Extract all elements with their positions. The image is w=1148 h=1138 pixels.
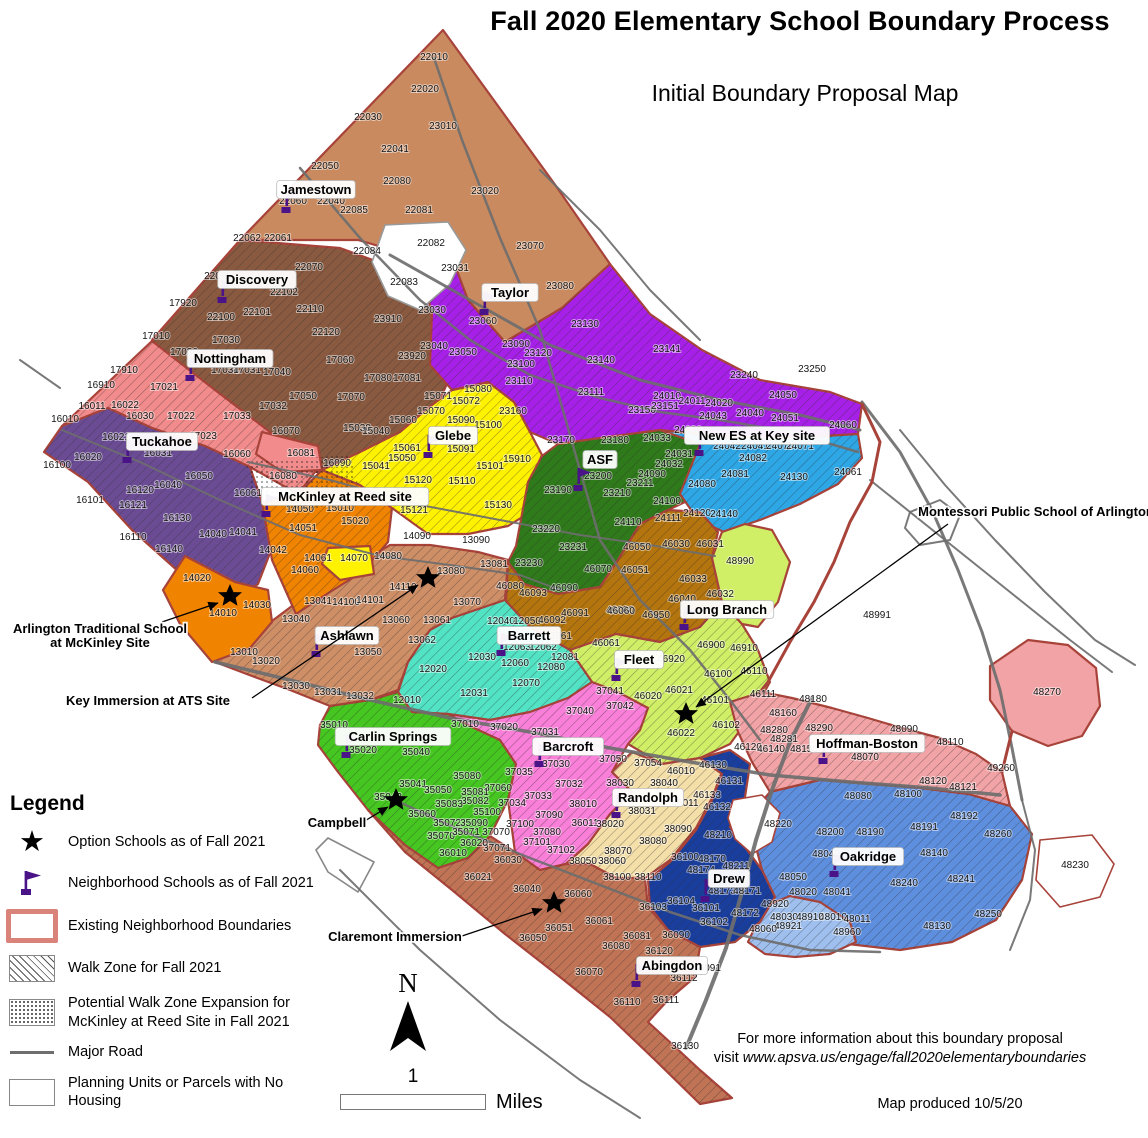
parcel-label: 23240 xyxy=(730,370,758,381)
parcel-label: 48011 xyxy=(843,914,871,925)
parcel-label: 23210 xyxy=(603,488,631,499)
parcel-label: 36030 xyxy=(494,855,522,866)
legend-item: Neighborhood Schools as of Fall 2021 xyxy=(6,869,334,897)
parcel-label: 24140 xyxy=(710,509,738,520)
parcel-label: 22120 xyxy=(312,327,340,338)
parcel-label: 17050 xyxy=(289,391,317,402)
parcel-label: 48270 xyxy=(1033,687,1061,698)
parcel-label: 14110 xyxy=(389,582,417,593)
parcel-label: 48290 xyxy=(805,723,833,734)
parcel-label: 38031 xyxy=(628,806,656,817)
parcel-label: 22110 xyxy=(296,304,324,315)
school-label: Carlin Springs xyxy=(349,729,438,744)
parcel-label: 23070 xyxy=(516,241,544,252)
parcel-label: 37050 xyxy=(599,754,627,765)
parcel-label: 46140 xyxy=(757,744,785,755)
parcel-label: 36090 xyxy=(662,930,690,941)
scale-unit: Miles xyxy=(496,1091,543,1114)
parcel-label: 17033 xyxy=(223,411,251,422)
parcel-label: 46032 xyxy=(706,589,734,600)
parcel-label: 15100 xyxy=(474,420,502,431)
parcel-label: 15020 xyxy=(341,516,369,527)
parcel-label: 37035 xyxy=(505,767,533,778)
parcel-label: 16030 xyxy=(126,411,154,422)
north-arrow: N xyxy=(384,968,432,1060)
parcel-label: 48041 xyxy=(823,887,851,898)
parcel-label: 36103 xyxy=(639,902,667,913)
parcel-label: 24060 xyxy=(829,420,857,431)
parcel-label: 23111 xyxy=(578,387,605,398)
parcel-label: 16080 xyxy=(269,471,297,482)
parcel-label: 36061 xyxy=(585,916,613,927)
nohousing-icon xyxy=(9,1079,55,1106)
parcel-label: 14090 xyxy=(403,531,431,542)
parcel-label: 46093 xyxy=(519,588,547,599)
parcel-label: 23040 xyxy=(420,341,448,352)
school-label: Fleet xyxy=(624,652,655,667)
school-label: Barrett xyxy=(508,628,551,643)
parcel-label: 16070 xyxy=(272,426,300,437)
parcel-label: 46090 xyxy=(550,583,578,594)
parcel-label: 36040 xyxy=(513,884,541,895)
school-label: Randolph xyxy=(618,790,678,805)
parcel-label: 48050 xyxy=(779,872,807,883)
footer-info-line1: For more information about this boundary… xyxy=(737,1031,1063,1047)
parcel-label: 13081 xyxy=(480,559,508,570)
parcel-label: 46111 xyxy=(750,689,777,700)
footer-info: For more information about this boundary… xyxy=(655,1030,1145,1068)
parcel-label: 17010 xyxy=(142,331,170,342)
parcel-label: 46132 xyxy=(703,802,731,813)
parcel-label: 35080 xyxy=(453,771,481,782)
school-label: Jamestown xyxy=(281,182,352,197)
parcel-label: 46900 xyxy=(697,640,725,651)
legend-item: Existing Neighborhood Boundaries xyxy=(6,909,334,943)
parcel-label: 36102 xyxy=(700,917,728,928)
school-label: Claremont Immersion xyxy=(328,929,462,944)
school-label: Taylor xyxy=(491,285,529,300)
parcel-label: 16100 xyxy=(43,460,71,471)
parcel-label: 37020 xyxy=(490,722,518,733)
parcel-label: 36111 xyxy=(653,995,680,1006)
legend-item-label: Option Schools as of Fall 2021 xyxy=(68,833,265,852)
parcel-label: 16910 xyxy=(87,380,115,391)
parcel-label: 48220 xyxy=(764,819,792,830)
parcel-label: 35060 xyxy=(408,809,436,820)
scale-value: 1 xyxy=(340,1066,486,1088)
parcel-label: 22084 xyxy=(353,246,381,257)
parcel-label: 36120 xyxy=(645,946,673,957)
parcel-label: 24033 xyxy=(643,433,671,444)
parcel-label: 12050 xyxy=(513,616,541,627)
parcel-label: 35040 xyxy=(402,747,430,758)
parcel-label: 14030 xyxy=(243,600,271,611)
school-label: Drew xyxy=(713,871,746,886)
parcel-label: 46130 xyxy=(699,760,727,771)
parcel-label: 14042 xyxy=(259,545,287,556)
flag-icon xyxy=(6,869,58,897)
school-label: Oakridge xyxy=(840,849,896,864)
parcel-label: 22080 xyxy=(383,176,411,187)
parcel-label: 22085 xyxy=(340,205,368,216)
parcel-label: 16110 xyxy=(119,532,147,543)
parcel-label: 16060 xyxy=(223,449,251,460)
parcel-label: 23110 xyxy=(505,376,533,387)
parcel-label: 48110 xyxy=(936,737,964,748)
parcel-label: 13070 xyxy=(453,597,481,608)
parcel-label: 24100 xyxy=(653,496,681,507)
parcel-label: 23080 xyxy=(546,281,574,292)
parcel-label: 46102 xyxy=(712,720,740,731)
parcel-label: 37090 xyxy=(535,810,563,821)
parcel-label: 17910 xyxy=(110,365,138,376)
parcel-label: 15101 xyxy=(476,461,504,472)
parcel-label: 23030 xyxy=(418,305,446,316)
school-label: Barcroft xyxy=(543,739,594,754)
parcel-label: 38010 xyxy=(569,799,597,810)
parcel-label: 35050 xyxy=(424,785,452,796)
parcel-label: 35070 xyxy=(427,831,455,842)
boundary-icon xyxy=(6,909,58,943)
parcel-label: 24011 xyxy=(678,396,706,407)
parcel-label: 38080 xyxy=(639,836,667,847)
north-label: N xyxy=(384,968,432,999)
parcel-label: 36020 xyxy=(460,838,488,849)
parcel-label: 35082 xyxy=(461,796,489,807)
parcel-label: 48191 xyxy=(910,822,938,833)
parcel-label: 24080 xyxy=(688,479,716,490)
parcel-label: 12070 xyxy=(512,678,540,689)
parcel-label: 22030 xyxy=(354,112,382,123)
parcel-label: 46091 xyxy=(561,608,589,619)
parcel-label: 15072 xyxy=(452,396,480,407)
parcel-label: 36021 xyxy=(464,872,492,883)
legend-item-label: Neighborhood Schools as of Fall 2021 xyxy=(68,874,314,893)
no-housing-area xyxy=(1036,835,1114,907)
parcel-label: 37034 xyxy=(498,798,526,809)
parcel-label: 24010 xyxy=(653,391,681,402)
parcel-label: 12020 xyxy=(419,664,447,675)
parcel-label: 15121 xyxy=(400,505,428,516)
parcel-label: 23050 xyxy=(449,347,477,358)
parcel-label: 48920 xyxy=(761,899,789,910)
parcel-label: 16101 xyxy=(76,495,104,506)
parcel-label: 12080 xyxy=(537,662,565,673)
parcel-label: 24043 xyxy=(699,411,727,422)
parcel-label: 16120 xyxy=(126,485,154,496)
parcel-label: 14051 xyxy=(289,523,317,534)
school-label: Montessori Public School of Arlington xyxy=(918,504,1148,519)
parcel-label: 23140 xyxy=(587,355,615,366)
parcel-label: 16010 xyxy=(51,414,79,425)
parcel-label: 46030 xyxy=(662,539,690,550)
parcel-label: 46950 xyxy=(642,610,670,621)
parcel-label: 46020 xyxy=(634,691,662,702)
parcel-label: 23920 xyxy=(398,351,426,362)
parcel-label: 17040 xyxy=(263,367,291,378)
parcel-label: 22081 xyxy=(405,205,433,216)
parcel-label: 23160 xyxy=(499,406,527,417)
parcel-label: 13041 xyxy=(304,596,332,607)
parcel-label: 15040 xyxy=(362,426,390,437)
parcel-label: 24061 xyxy=(834,467,862,478)
parcel-label: 24040 xyxy=(736,408,764,419)
legend-heading: Legend xyxy=(10,792,334,816)
parcel-label: 15130 xyxy=(484,500,512,511)
parcel-label: 13060 xyxy=(382,615,410,626)
parcel-label: 48991 xyxy=(863,610,891,621)
parcel-label: 37031 xyxy=(531,727,559,738)
school-label: Hoffman-Boston xyxy=(816,736,918,751)
parcel-label: 48210 xyxy=(704,830,732,841)
parcel-label: 14070 xyxy=(340,553,368,564)
major-road xyxy=(20,360,60,388)
parcel-label: 14080 xyxy=(374,551,402,562)
parcel-label: 22020 xyxy=(411,84,439,95)
parcel-label: 16011 xyxy=(78,401,106,412)
parcel-label: 22062 xyxy=(233,233,261,244)
parcel-label: 48921 xyxy=(774,921,802,932)
parcel-label: 23910 xyxy=(374,314,402,325)
parcel-label: 16050 xyxy=(185,471,213,482)
parcel-label: 46060 xyxy=(607,606,635,617)
parcel-label: 22050 xyxy=(311,161,339,172)
parcel-label: 17022 xyxy=(167,411,195,422)
parcel-label: 15041 xyxy=(362,461,390,472)
parcel-label: 48241 xyxy=(947,874,975,885)
star-icon: ★ xyxy=(19,828,45,857)
parcel-label: 36011 xyxy=(571,818,599,829)
parcel-label: 14060 xyxy=(291,565,319,576)
parcel-label: 37032 xyxy=(555,779,583,790)
hatch-icon xyxy=(9,955,55,982)
parcel-label: 14101 xyxy=(356,595,384,606)
parcel-label: 14020 xyxy=(183,573,211,584)
parcel-label: 48960 xyxy=(833,927,861,938)
parcel-label: 46051 xyxy=(621,565,649,576)
parcel-label: 24111 xyxy=(655,513,682,524)
parcel-label: 46031 xyxy=(696,539,724,550)
parcel-label: 48180 xyxy=(799,694,827,705)
parcel-label: 22082 xyxy=(417,238,445,249)
parcel-label: 15091 xyxy=(447,444,475,455)
school-label: Tuckahoe xyxy=(132,434,192,449)
parcel-label: 17021 xyxy=(150,382,178,393)
school-label: ASF xyxy=(587,452,613,467)
parcel-label: 37054 xyxy=(634,758,662,769)
parcel-label: 48121 xyxy=(949,782,977,793)
parcel-label: 48230 xyxy=(1061,860,1089,871)
parcel-label: 48260 xyxy=(984,829,1012,840)
parcel-label: 38100 xyxy=(603,872,631,883)
parcel-label: 13020 xyxy=(252,656,280,667)
parcel-label: 38040 xyxy=(650,778,678,789)
dots-icon xyxy=(9,999,55,1026)
parcel-label: 22061 xyxy=(264,233,292,244)
parcel-label: 16061 xyxy=(234,488,262,499)
parcel-label: 12040 xyxy=(487,616,515,627)
parcel-label: 24110 xyxy=(614,517,642,528)
parcel-label: 23250 xyxy=(798,364,826,375)
parcel-label: 35083 xyxy=(435,799,463,810)
parcel-label: 36050 xyxy=(519,933,547,944)
legend: Legend ★ Option Schools as of Fall 2021 … xyxy=(6,792,334,1123)
legend-item-label: Planning Units or Parcels with No Housin… xyxy=(68,1074,334,1111)
parcel-label: 13080 xyxy=(437,566,465,577)
parcel-label: 49260 xyxy=(987,763,1015,774)
parcel-label: 16081 xyxy=(287,448,315,459)
road-icon xyxy=(10,1051,54,1054)
legend-item: Walk Zone for Fall 2021 xyxy=(6,955,334,982)
parcel-label: 46021 xyxy=(665,685,693,696)
parcel-label: 23220 xyxy=(532,524,560,535)
parcel-label: 48250 xyxy=(974,909,1002,920)
parcel-label: 23151 xyxy=(651,401,679,412)
parcel-label: 24130 xyxy=(780,472,808,483)
parcel-label: 38060 xyxy=(598,856,626,867)
major-road xyxy=(900,430,1135,665)
parcel-label: 48160 xyxy=(769,708,797,719)
parcel-label: 48130 xyxy=(923,921,951,932)
parcel-label: 13061 xyxy=(423,615,451,626)
parcel-label: 46070 xyxy=(584,564,612,575)
parcel-label: 14061 xyxy=(304,553,332,564)
parcel-label: 35071 xyxy=(452,827,480,838)
parcel-label: 23031 xyxy=(441,263,469,274)
north-arrow-icon xyxy=(384,999,432,1055)
school-label: Nottingham xyxy=(194,351,266,366)
parcel-label: 23190 xyxy=(544,485,572,496)
parcel-label: 48172 xyxy=(731,908,759,919)
parcel-label: 15910 xyxy=(503,454,531,465)
parcel-label: 13030 xyxy=(282,681,310,692)
parcel-label: 24082 xyxy=(739,453,767,464)
school-label: Discovery xyxy=(226,272,289,287)
school-label: Ashlawn xyxy=(320,628,374,643)
legend-item-label: Major Road xyxy=(68,1043,143,1062)
parcel-label: 15120 xyxy=(404,475,432,486)
legend-item: Planning Units or Parcels with No Housin… xyxy=(6,1074,334,1111)
parcel-label: 12010 xyxy=(393,695,421,706)
parcel-label: 36101 xyxy=(692,903,720,914)
parcel-label: 23141 xyxy=(653,344,681,355)
parcel-label: 35100 xyxy=(473,807,501,818)
parcel-label: 23100 xyxy=(507,359,535,370)
parcel-label: 37102 xyxy=(547,845,575,856)
parcel-label: 46061 xyxy=(592,638,620,649)
legend-item: Potential Walk Zone Expansion for McKinl… xyxy=(6,994,334,1031)
parcel-label: 17060 xyxy=(326,355,354,366)
parcel-label: 24081 xyxy=(721,469,749,480)
legend-item: Major Road xyxy=(6,1043,334,1062)
parcel-label: 22010 xyxy=(420,52,448,63)
parcel-label: 15080 xyxy=(464,384,492,395)
parcel-label: 13090 xyxy=(462,535,490,546)
parcel-label: 15060 xyxy=(389,415,417,426)
parcel-label: 15090 xyxy=(447,415,475,426)
parcel-label: 48240 xyxy=(890,878,918,889)
parcel-label: 37040 xyxy=(566,706,594,717)
parcel-label: 38050 xyxy=(569,856,597,867)
school-label: New ES at Key site xyxy=(699,428,815,443)
parcel-label: 23231 xyxy=(559,542,587,553)
parcel-label: 36100 xyxy=(671,852,699,863)
parcel-label: 14040 xyxy=(199,529,227,540)
parcel-label: 48140 xyxy=(920,848,948,859)
parcel-label: 24120 xyxy=(683,508,711,519)
parcel-label: 17081 xyxy=(393,373,421,384)
parcel-label: 37042 xyxy=(606,701,634,712)
parcel-label: 12060 xyxy=(501,658,529,669)
parcel-label: 37033 xyxy=(524,791,552,802)
parcel-label: 48080 xyxy=(844,791,872,802)
parcel-label: 22083 xyxy=(390,277,418,288)
parcel-label: 16022 xyxy=(111,400,139,411)
parcel-label: 48070 xyxy=(851,752,879,763)
parcel-label: 36104 xyxy=(667,896,695,907)
legend-item-label: Existing Neighborhood Boundaries xyxy=(68,917,291,936)
parcel-label: 23130 xyxy=(571,319,599,330)
school-label: Key Immersion at ATS Site xyxy=(66,693,230,708)
parcel-label: 36010 xyxy=(439,848,467,859)
parcel-label: 36070 xyxy=(575,967,603,978)
parcel-label: 46022 xyxy=(667,728,695,739)
parcel-label: 38030 xyxy=(606,778,634,789)
parcel-label: 16140 xyxy=(155,544,183,555)
parcel-label: 13050 xyxy=(354,647,382,658)
parcel-label: 17032 xyxy=(259,401,287,412)
parcel-label: 23230 xyxy=(515,558,543,569)
parcel-label: 37010 xyxy=(451,719,479,730)
parcel-label: 17070 xyxy=(337,392,365,403)
parcel-label: 23120 xyxy=(524,348,552,359)
parcel-label: 48060 xyxy=(749,924,777,935)
parcel-label: 37100 xyxy=(506,819,534,830)
parcel-label: 17030 xyxy=(212,335,240,346)
legend-item: ★ Option Schools as of Fall 2021 xyxy=(6,828,334,857)
parcel-label: 48192 xyxy=(950,811,978,822)
school-label: McKinley at Reed site xyxy=(278,489,412,504)
parcel-label: 46100 xyxy=(704,669,732,680)
parcel-label: 46010 xyxy=(667,766,695,777)
school-label: Glebe xyxy=(435,428,471,443)
parcel-label: 48020 xyxy=(789,887,817,898)
parcel-label: 15110 xyxy=(448,476,476,487)
parcel-label: 13032 xyxy=(346,691,374,702)
parcel-label: 36051 xyxy=(545,923,573,934)
parcel-label: 15070 xyxy=(417,406,445,417)
parcel-label: 48200 xyxy=(816,827,844,838)
parcel-label: 37030 xyxy=(542,759,570,770)
parcel-label: 13031 xyxy=(314,687,342,698)
parcel-label: 38020 xyxy=(596,819,624,830)
legend-item-label: Walk Zone for Fall 2021 xyxy=(68,959,221,978)
parcel-label: 23010 xyxy=(429,121,457,132)
footer-info-url: www.apsva.us/engage/fall2020elementarybo… xyxy=(743,1050,1086,1066)
parcel-label: 46050 xyxy=(623,542,651,553)
parcel-label: 48190 xyxy=(856,827,884,838)
parcel-label: 35041 xyxy=(399,779,427,790)
footer-info-visit: visit xyxy=(714,1050,743,1066)
parcel-label: 14010 xyxy=(209,608,237,619)
scale-bar xyxy=(340,1094,486,1110)
parcel-label: 16121 xyxy=(119,500,147,511)
parcel-label: 23170 xyxy=(547,435,575,446)
parcel-label: 16020 xyxy=(74,452,102,463)
parcel-label: 48990 xyxy=(726,556,754,567)
parcel-label: 16130 xyxy=(163,513,191,524)
parcel-label: 38090 xyxy=(664,824,692,835)
